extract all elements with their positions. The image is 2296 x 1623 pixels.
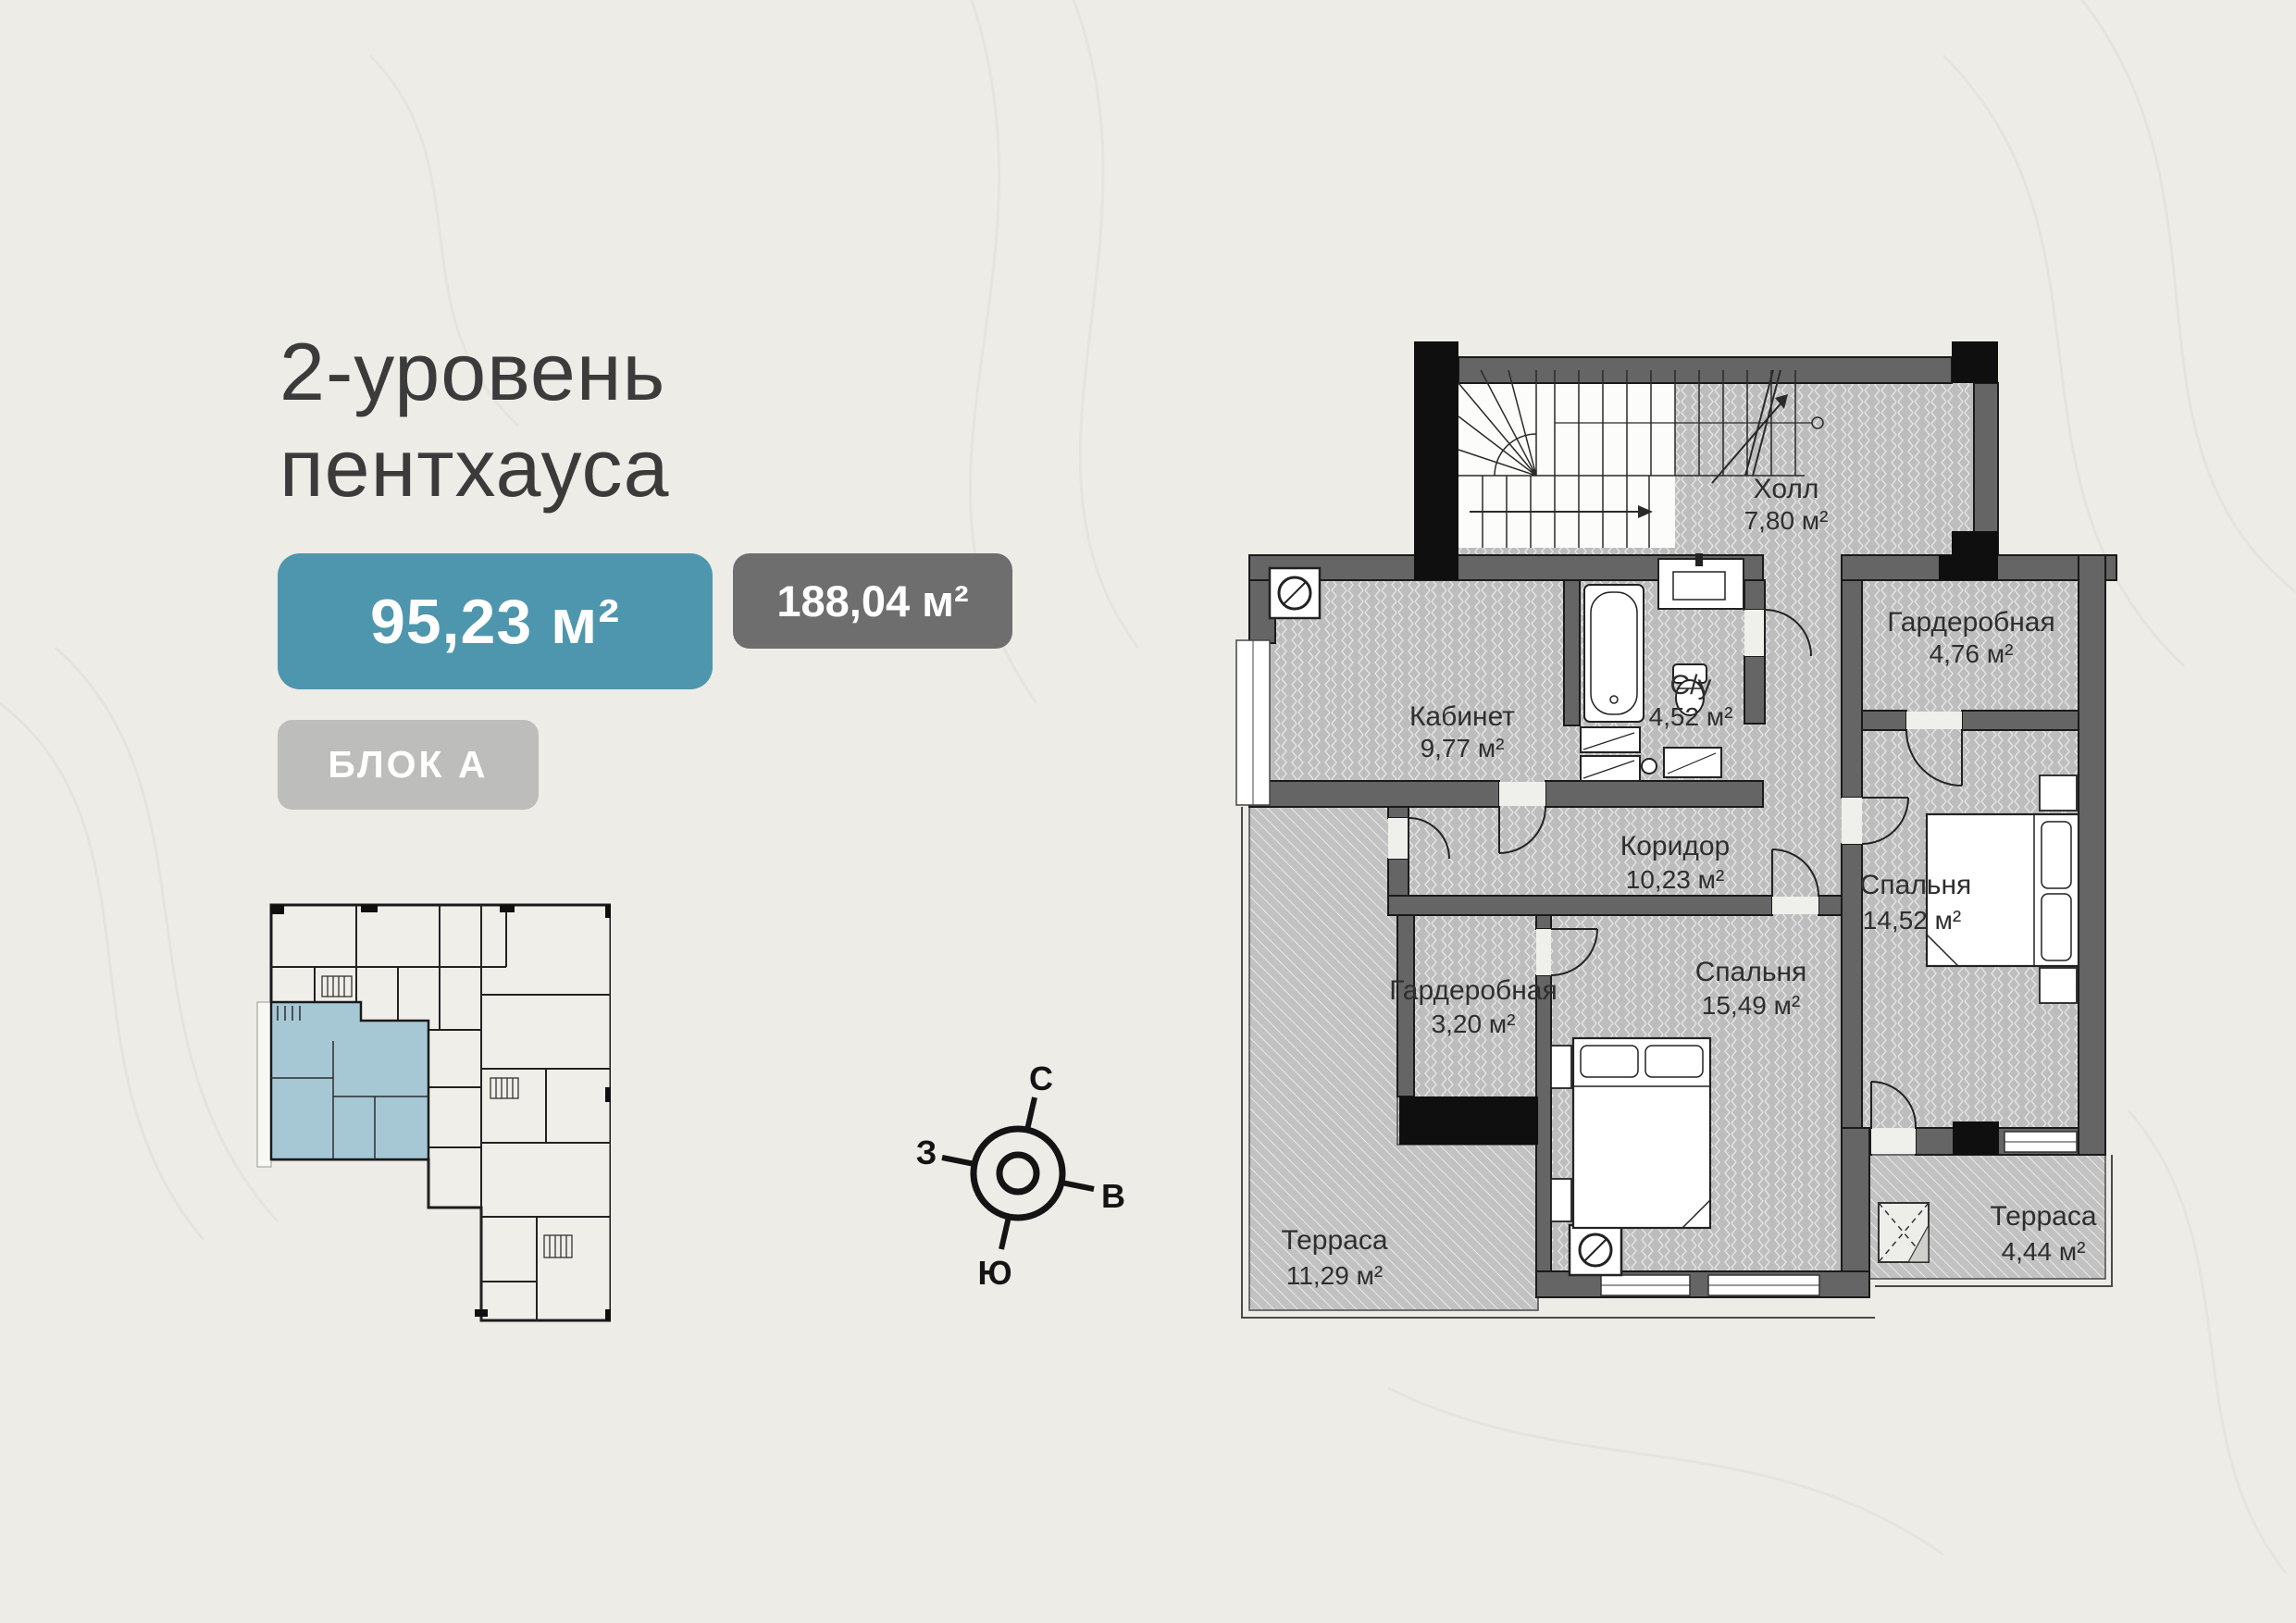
label-office-area: 9,77 м² bbox=[1421, 734, 1505, 762]
bed-bedroom-15 bbox=[1551, 1038, 1710, 1228]
label-terrace2-area: 4,44 м² bbox=[2002, 1237, 2086, 1266]
label-bath-area: 4,52 м² bbox=[1649, 702, 1733, 731]
label-hall-name: Холл bbox=[1754, 474, 1819, 504]
block-value: БЛОК А bbox=[328, 743, 488, 787]
total-area-value: 188,04 м² bbox=[776, 576, 968, 626]
compass-west-label: З bbox=[916, 1134, 937, 1171]
level-area-badge: 95,23 м² bbox=[278, 553, 713, 689]
label-terrace1-name: Терраса bbox=[1281, 1225, 1387, 1256]
label-terrace1-area: 11,29 м² bbox=[1286, 1261, 1383, 1290]
compass-north-label: С bbox=[1029, 1059, 1053, 1097]
main-floor-plan: Холл 7,80 м² Кабинет 9,77 м² С/у 4,52 м²… bbox=[1231, 335, 2138, 1334]
label-bedroom2-area: 15,49 м² bbox=[1702, 991, 1800, 1020]
bathtub bbox=[1584, 585, 1644, 722]
building-mini-plan bbox=[213, 902, 611, 1356]
label-corridor-area: 10,23 м² bbox=[1626, 865, 1724, 894]
level-area-value: 95,23 м² bbox=[370, 586, 620, 658]
label-wardrobe2-name: Гардеробная bbox=[1389, 975, 1557, 1006]
label-terrace2-name: Терраса bbox=[1990, 1201, 2096, 1232]
title-line-2: пентхауса bbox=[279, 420, 669, 516]
block-badge: БЛОК А bbox=[278, 720, 539, 810]
label-wardrobe1-name: Гардеробная bbox=[1887, 607, 2054, 638]
staircase-floor bbox=[1458, 370, 1675, 548]
label-office-name: Кабинет bbox=[1409, 701, 1515, 732]
label-bath-name: С/у bbox=[1670, 670, 1712, 700]
label-bedroom1-area: 14,52 м² bbox=[1863, 906, 1961, 935]
highlighted-unit bbox=[271, 1002, 428, 1159]
label-bedroom2-name: Спальня bbox=[1695, 957, 1807, 987]
compass-south-label: Ю bbox=[977, 1254, 1011, 1292]
floor-plan-poster: 2-уровень пентхауса 95,23 м² 188,04 м² Б… bbox=[0, 0, 2296, 1623]
mini-balcony-band bbox=[257, 1002, 271, 1167]
compass-ticks bbox=[942, 1097, 1094, 1249]
compass-inner-circle bbox=[999, 1155, 1036, 1192]
page-title: 2-уровень пентхауса bbox=[279, 324, 669, 516]
label-wardrobe1-area: 4,76 м² bbox=[1930, 639, 2014, 668]
compass-outer-circle bbox=[974, 1129, 1062, 1218]
total-area-badge: 188,04 м² bbox=[733, 553, 1012, 649]
title-line-1: 2-уровень bbox=[279, 324, 669, 420]
compass-rose: С В Ю З bbox=[912, 1055, 1134, 1292]
label-corridor-name: Коридор bbox=[1620, 831, 1730, 861]
label-wardrobe2-area: 3,20 м² bbox=[1432, 1010, 1516, 1038]
label-hall-area: 7,80 м² bbox=[1744, 506, 1829, 535]
roof-hatch bbox=[1879, 1203, 1929, 1262]
sink bbox=[1658, 559, 1744, 609]
compass-east-label: В bbox=[1101, 1177, 1125, 1215]
label-bedroom1-name: Спальня bbox=[1860, 870, 1972, 900]
